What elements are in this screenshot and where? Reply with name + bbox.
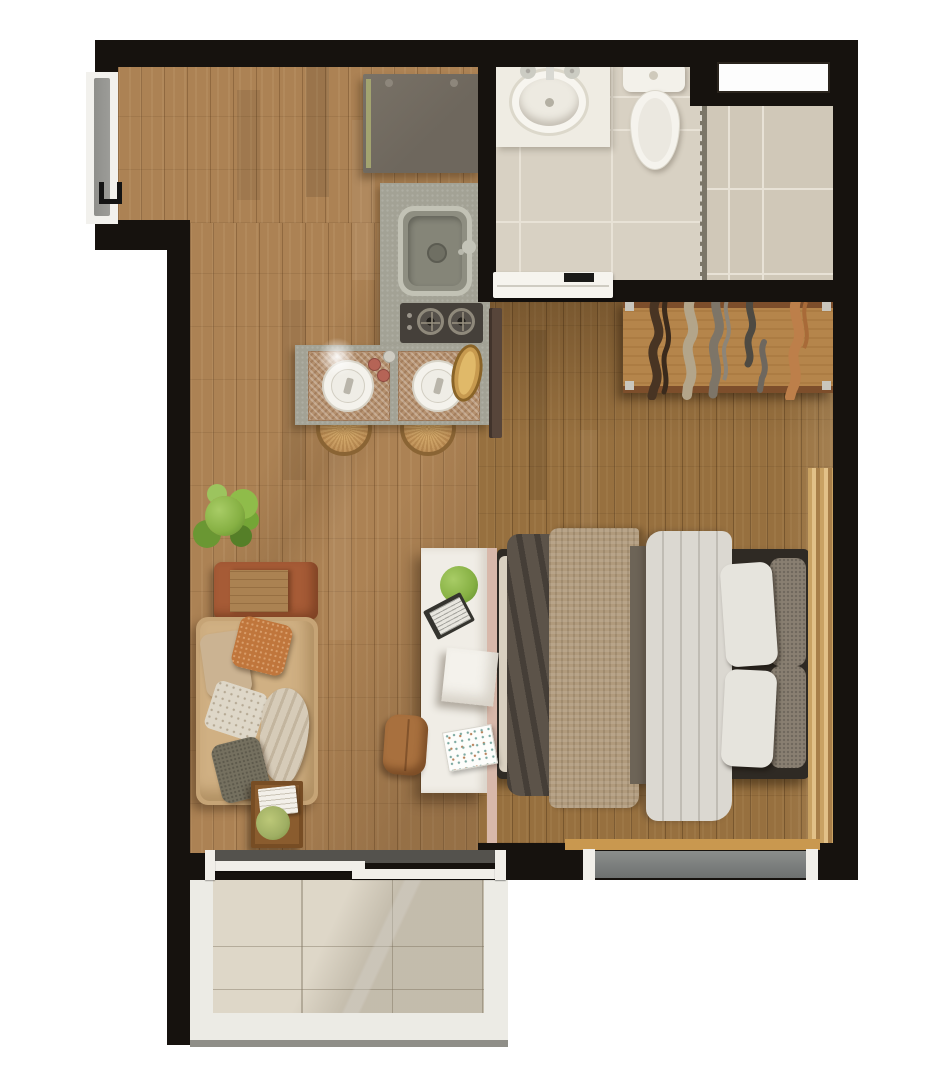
wall-bath-divider xyxy=(478,40,496,302)
ottoman-pouf xyxy=(382,714,429,777)
bedroom-window-glass xyxy=(588,851,816,878)
entry-door-handle-b xyxy=(117,182,122,204)
floor-plan xyxy=(0,0,949,1080)
garment-dark-brown xyxy=(652,296,659,396)
garment-gray xyxy=(713,294,719,394)
blanket-tan xyxy=(549,528,639,808)
bed-pillow-white-2 xyxy=(720,669,777,769)
balcony-door-post-left xyxy=(205,850,215,880)
potted-plant-large xyxy=(205,496,245,536)
storage-box xyxy=(441,647,498,706)
window-sill xyxy=(565,839,820,850)
plank-shade xyxy=(529,330,546,500)
tall-board xyxy=(489,308,502,438)
duvet xyxy=(646,531,732,821)
entry-cabinet xyxy=(363,74,482,173)
burner-right xyxy=(448,308,475,335)
garment-dark-gray xyxy=(748,296,753,364)
garment-orange xyxy=(790,296,799,397)
balcony-door-track-1 xyxy=(213,861,365,871)
burner-left xyxy=(417,308,444,335)
garment-beige xyxy=(687,296,693,395)
headrest-plank xyxy=(230,570,288,612)
kitchen-sink xyxy=(398,206,472,296)
entry-door-handle-a xyxy=(99,182,104,204)
kitchen-faucet xyxy=(462,240,476,254)
balcony-door-post-right xyxy=(495,850,506,880)
bath-door-handle xyxy=(564,273,594,282)
wall-step xyxy=(95,220,190,250)
plank-shade xyxy=(237,90,260,200)
balcony-tile xyxy=(213,880,484,1013)
transom-window xyxy=(717,62,830,93)
counter-flare xyxy=(316,336,358,378)
shower-partition xyxy=(700,105,707,282)
garment-gray-short xyxy=(760,342,765,390)
balcony-door-track-2 xyxy=(352,869,505,879)
magazine xyxy=(442,724,498,772)
bath-sliding-door xyxy=(493,272,613,298)
curtain xyxy=(808,468,833,860)
balcony-outer-edge xyxy=(190,1040,508,1047)
bed-pillow-white-1 xyxy=(719,561,778,667)
wall-right xyxy=(833,40,858,880)
shaker-2 xyxy=(377,369,390,382)
bedroom-window-frame-left xyxy=(583,849,595,880)
garment-dark-brown-strap xyxy=(664,298,669,392)
glass-jar xyxy=(383,350,396,363)
bedroom-window-frame-right xyxy=(806,849,818,880)
garment-orange-strap xyxy=(804,302,807,348)
garment-gray-strap xyxy=(724,300,729,380)
wall-left-lower xyxy=(167,248,190,1045)
floor-shower xyxy=(707,105,833,282)
plant-moss xyxy=(256,806,290,840)
hanging-clothes xyxy=(630,292,830,400)
plank-shade xyxy=(329,440,352,640)
plank-shade xyxy=(306,67,329,197)
